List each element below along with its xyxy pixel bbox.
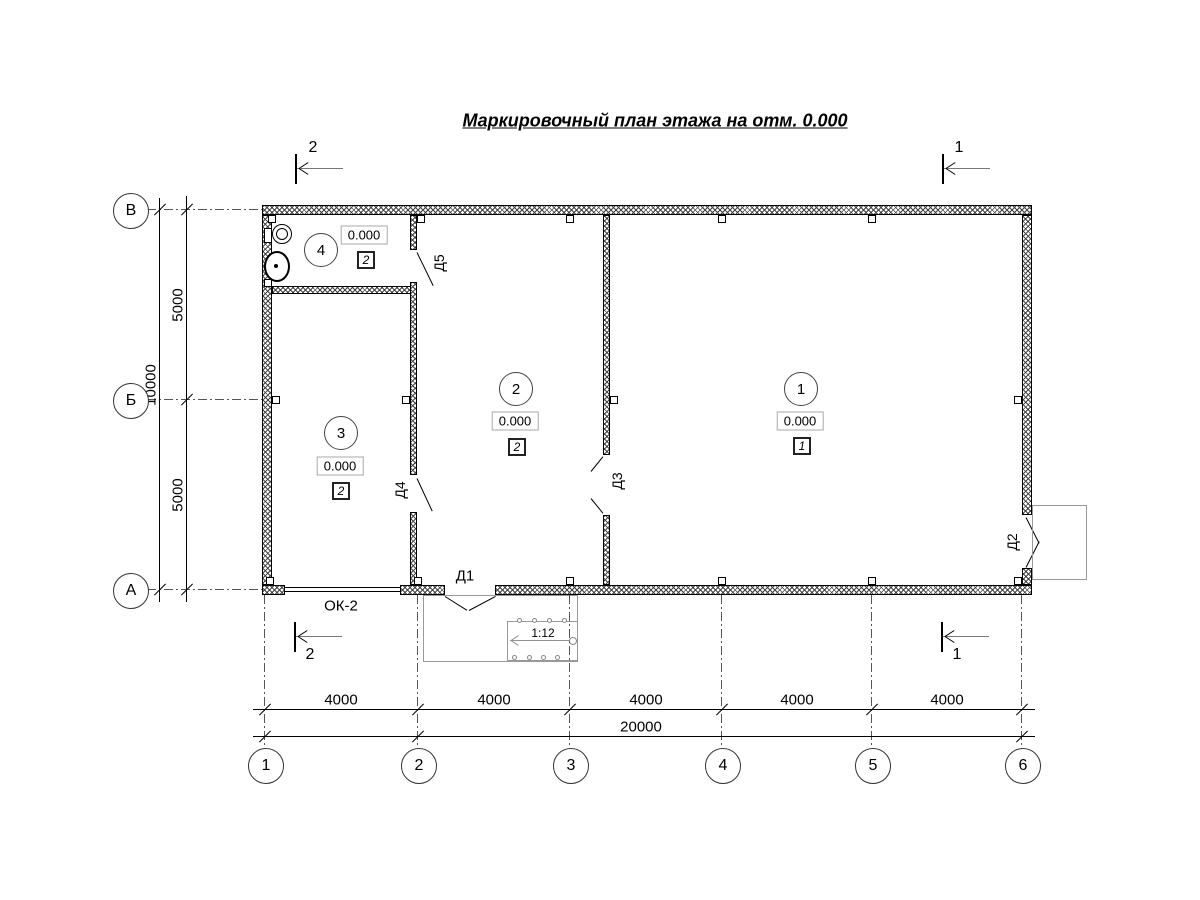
axis-bubble-row-B: В bbox=[113, 193, 149, 229]
axis-line-col5 bbox=[871, 595, 872, 748]
section1-bottom-line bbox=[943, 636, 989, 637]
section1-bottom-arrowhead bbox=[945, 636, 955, 643]
section2-top-tick bbox=[295, 154, 297, 184]
dim-left-seg2: 5000 bbox=[170, 478, 187, 511]
axis-bubble-col-1: 1 bbox=[248, 748, 284, 784]
pilaster-interior2-axisB bbox=[610, 396, 618, 404]
room4-floor-type: 2 bbox=[363, 253, 370, 267]
section1-bottom-label: 1 bbox=[953, 646, 962, 664]
axis-row-label: А bbox=[126, 582, 137, 600]
axis-col-label: 4 bbox=[719, 757, 728, 775]
door-d3-label: Д3 bbox=[609, 472, 625, 489]
dim-bottom-total: 20000 bbox=[620, 719, 662, 736]
pilaster-top-axis4 bbox=[718, 215, 726, 223]
room2-floor-type-box: 2 bbox=[508, 438, 526, 456]
toilet-tank bbox=[264, 228, 272, 243]
ramp-slope-label: 1:12 bbox=[529, 626, 556, 640]
room1-floor-type-box: 1 bbox=[793, 437, 811, 455]
room3-elevation: 0.000 bbox=[317, 457, 364, 476]
wall-bottom-right bbox=[495, 585, 1032, 595]
sink-drain-dot bbox=[274, 264, 278, 268]
axis-col-label: 6 bbox=[1019, 757, 1028, 775]
axis-bubble-col-6: 6 bbox=[1005, 748, 1041, 784]
door-d4-label: Д4 bbox=[392, 481, 408, 498]
axis-line-col4 bbox=[721, 595, 722, 748]
section1-top-tick bbox=[942, 154, 944, 184]
room2-number-bubble: 2 bbox=[499, 372, 533, 406]
dim-bottom-seg3: 4000 bbox=[629, 692, 662, 709]
axis-col-label: 1 bbox=[262, 757, 271, 775]
section2-top-label: 2 bbox=[309, 139, 318, 157]
axis-bubble-col-5: 5 bbox=[855, 748, 891, 784]
pilaster-top-axis5 bbox=[868, 215, 876, 223]
pilaster-bottom-axis5 bbox=[868, 577, 876, 585]
dim-left-seg1: 5000 bbox=[170, 288, 187, 321]
wall-top bbox=[262, 205, 1032, 215]
wall-interior2-upper bbox=[603, 215, 610, 455]
window-frame-line-outer bbox=[285, 587, 400, 588]
door-d5-label: Д5 bbox=[431, 254, 447, 271]
door-d1-label: Д1 bbox=[456, 568, 475, 585]
wall-interior1-mid bbox=[410, 282, 417, 475]
dim-bottom-seg4: 4000 bbox=[780, 692, 813, 709]
room1-floor-type: 1 bbox=[799, 439, 806, 453]
room4-floor-type-box: 2 bbox=[357, 251, 375, 269]
ramp-post bbox=[547, 618, 552, 623]
room2-floor-type: 2 bbox=[514, 440, 521, 454]
side-porch bbox=[1032, 505, 1087, 580]
axis-col-label: 5 bbox=[869, 757, 878, 775]
room3-number: 3 bbox=[337, 425, 345, 442]
dim-bottom-seg2: 4000 bbox=[477, 692, 510, 709]
section1-top-label: 1 bbox=[955, 139, 964, 157]
wall-interior2-lower bbox=[603, 515, 610, 585]
room3-number-bubble: 3 bbox=[324, 416, 358, 450]
ramp-post bbox=[512, 655, 517, 660]
section2-top-line bbox=[297, 168, 343, 169]
axis-bubble-row-A: А bbox=[113, 573, 149, 609]
room2-number: 2 bbox=[512, 381, 520, 398]
room3-floor-type-box: 2 bbox=[332, 482, 350, 500]
window-frame-line-inner bbox=[285, 591, 400, 592]
ramp-post bbox=[532, 618, 537, 623]
door-d2-label: Д2 bbox=[1004, 533, 1020, 550]
axis-line-Bb-row bbox=[147, 399, 262, 400]
room4-number-bubble: 4 bbox=[304, 233, 338, 267]
dim-bottom-seg1: 4000 bbox=[324, 692, 357, 709]
door-d4-leaf bbox=[417, 478, 433, 511]
wall-interior1-lower bbox=[410, 512, 417, 585]
pilaster-top-corner bbox=[268, 215, 276, 223]
ramp-slope-arrow-line bbox=[510, 640, 572, 641]
floor-plan-drawing: Маркировочный план этажа на отм. 0.000 О… bbox=[0, 0, 1200, 900]
section2-bottom-line bbox=[296, 636, 342, 637]
pilaster-bottom-corner6 bbox=[1014, 577, 1022, 585]
pilaster-top-axis3 bbox=[566, 215, 574, 223]
section2-bottom-label: 2 bbox=[306, 646, 315, 664]
pilaster-right-axisB bbox=[1014, 396, 1022, 404]
pilaster-interior1-axisB bbox=[402, 396, 410, 404]
toilet-bowl-inner bbox=[276, 228, 288, 240]
ramp-post bbox=[555, 655, 560, 660]
dim-line-bottom-segments bbox=[253, 709, 1035, 710]
page-title: Маркировочный план этажа на отм. 0.000 bbox=[462, 111, 847, 132]
axis-line-B-row bbox=[147, 209, 262, 210]
pilaster-bottom-axis2 bbox=[414, 577, 422, 585]
section1-top-line bbox=[944, 168, 990, 169]
pilaster-bottom-axis4 bbox=[718, 577, 726, 585]
axis-row-label: В bbox=[126, 202, 137, 220]
room1-number-bubble: 1 bbox=[784, 372, 818, 406]
section2-top-arrowhead bbox=[299, 168, 309, 175]
pilaster-left-axisB bbox=[272, 396, 280, 404]
section2-bottom-arrowhead bbox=[298, 636, 308, 643]
axis-row-label: Б bbox=[126, 392, 137, 410]
wall-right-lower bbox=[1022, 568, 1032, 585]
room4-elevation: 0.000 bbox=[341, 226, 388, 245]
room3-floor-type: 2 bbox=[338, 484, 345, 498]
ramp-post bbox=[541, 655, 546, 660]
section2-bottom-tick bbox=[294, 622, 296, 652]
axis-line-col2 bbox=[417, 595, 418, 748]
pilaster-bottom-axis1 bbox=[266, 577, 274, 585]
section1-top-arrowhead bbox=[946, 168, 956, 175]
axis-line-col3 bbox=[569, 595, 570, 748]
axis-col-label: 2 bbox=[415, 757, 424, 775]
dim-bottom-seg5: 4000 bbox=[930, 692, 963, 709]
room2-elevation: 0.000 bbox=[492, 412, 539, 431]
axis-bubble-col-3: 3 bbox=[553, 748, 589, 784]
wall-bottom-left-stub bbox=[262, 585, 285, 595]
wall-right-upper bbox=[1022, 215, 1032, 515]
axis-line-col6 bbox=[1021, 595, 1022, 748]
door-d3-leaf-bottom bbox=[591, 498, 604, 513]
wall-bathroom-bottom bbox=[272, 286, 417, 294]
ramp-post bbox=[517, 618, 522, 623]
dim-line-bottom-total bbox=[253, 736, 1035, 737]
room4-number: 4 bbox=[317, 242, 325, 259]
axis-col-label: 3 bbox=[567, 757, 576, 775]
window-label: ОК-2 bbox=[324, 598, 358, 615]
door-d3-leaf-top bbox=[591, 456, 604, 471]
wall-interior1-upper bbox=[410, 215, 417, 250]
wall-bottom-mid bbox=[400, 585, 445, 595]
axis-bubble-row-Bb: Б bbox=[113, 383, 149, 419]
pilaster-top-axis2 bbox=[417, 215, 425, 223]
axis-line-col1 bbox=[264, 595, 265, 748]
axis-bubble-col-2: 2 bbox=[401, 748, 437, 784]
axis-bubble-col-4: 4 bbox=[705, 748, 741, 784]
room1-elevation: 0.000 bbox=[777, 412, 824, 431]
section1-bottom-tick bbox=[941, 622, 943, 652]
ramp-post bbox=[562, 618, 567, 623]
ramp-post bbox=[527, 655, 532, 660]
axis-line-A-row bbox=[147, 589, 262, 590]
ramp-arrow-origin-circle bbox=[569, 637, 577, 645]
room1-number: 1 bbox=[797, 381, 805, 398]
pilaster-bottom-axis3 bbox=[566, 577, 574, 585]
